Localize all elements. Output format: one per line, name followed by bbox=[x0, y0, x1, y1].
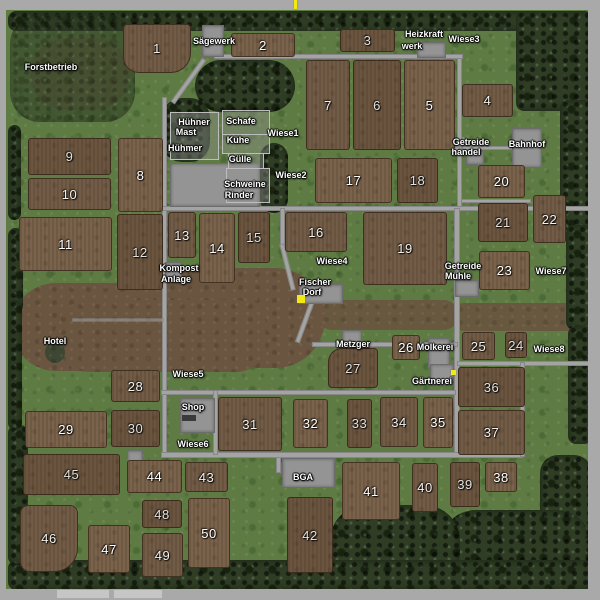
field-17-label: 17 bbox=[346, 173, 361, 188]
field-14-label: 14 bbox=[209, 241, 224, 256]
place-label-s-gewerk-2: Sägewerk bbox=[193, 36, 235, 46]
field-40: 40 bbox=[412, 463, 438, 512]
forest-patch-14 bbox=[195, 60, 295, 112]
place-label-h-hmer-8: Hühmer bbox=[168, 143, 202, 153]
field-36: 36 bbox=[458, 367, 525, 407]
field-44: 44 bbox=[127, 460, 182, 493]
field-3: 3 bbox=[340, 29, 395, 52]
place-label-kompost-22: Kompost bbox=[160, 263, 199, 273]
field-10: 10 bbox=[28, 178, 111, 210]
place-label-wiese4-24: Wiese4 bbox=[317, 256, 348, 266]
place-label-shop-33: Shop bbox=[182, 402, 205, 412]
field-7-label: 7 bbox=[324, 98, 332, 113]
road-segment-16 bbox=[276, 457, 281, 473]
field-41-label: 41 bbox=[363, 484, 378, 499]
place-label-forstbetrieb-1: Forstbetrieb bbox=[25, 62, 78, 72]
place-label-heizkraft-3: Heizkraft bbox=[405, 29, 443, 39]
field-34: 34 bbox=[380, 397, 418, 447]
place-label-dorf-26: Dorf bbox=[303, 287, 322, 297]
field-45: 45 bbox=[23, 454, 120, 495]
player-position-marker bbox=[297, 295, 305, 303]
place-label-wiese5-28: Wiese5 bbox=[173, 369, 204, 379]
field-35-label: 35 bbox=[430, 415, 445, 430]
place-label-g-lle-11: Gülle bbox=[229, 154, 252, 164]
field-5-label: 5 bbox=[426, 98, 434, 113]
place-label-wiese2-15: Wiese2 bbox=[276, 170, 307, 180]
field-23: 23 bbox=[479, 251, 530, 290]
frame-right bbox=[588, 0, 600, 600]
field-44-label: 44 bbox=[147, 469, 162, 484]
grain-mill bbox=[455, 280, 479, 297]
field-22: 22 bbox=[533, 195, 566, 243]
place-label-wiese8-32: Wiese8 bbox=[534, 344, 565, 354]
garden-center-marker bbox=[451, 370, 456, 375]
field-13-label: 13 bbox=[174, 228, 189, 243]
field-13: 13 bbox=[168, 212, 196, 258]
field-25: 25 bbox=[462, 332, 495, 360]
field-35: 35 bbox=[423, 397, 453, 448]
place-label-anlage-23: Anlage bbox=[161, 274, 191, 284]
field-30: 30 bbox=[111, 410, 160, 447]
field-12: 12 bbox=[117, 214, 163, 290]
road-segment-4 bbox=[457, 58, 462, 208]
field-28-label: 28 bbox=[128, 379, 143, 394]
field-34-label: 34 bbox=[391, 415, 406, 430]
place-label-getreide-16: Getreide bbox=[453, 137, 490, 147]
field-39-label: 39 bbox=[457, 477, 472, 492]
field-50-label: 50 bbox=[201, 526, 216, 541]
place-label-bga-35: BGA bbox=[293, 472, 313, 482]
field-24-label: 24 bbox=[508, 338, 523, 353]
shop-vehicle bbox=[182, 415, 196, 421]
field-19: 19 bbox=[363, 212, 447, 285]
place-label-metzger-29: Metzger bbox=[336, 339, 370, 349]
field-46-label: 46 bbox=[41, 531, 56, 546]
field-40-label: 40 bbox=[417, 480, 432, 495]
field-49: 49 bbox=[142, 533, 183, 577]
field-15-label: 15 bbox=[246, 230, 261, 245]
field-49-label: 49 bbox=[155, 548, 170, 563]
field-46: 46 bbox=[20, 505, 78, 572]
road-segment-7 bbox=[457, 361, 600, 366]
field-20: 20 bbox=[478, 165, 525, 198]
field-7: 7 bbox=[306, 60, 350, 150]
field-8-label: 8 bbox=[137, 168, 145, 183]
place-label-wiese7-21: Wiese7 bbox=[536, 266, 567, 276]
place-label-wiese6-34: Wiese6 bbox=[178, 439, 209, 449]
place-label-mast-7: Mast bbox=[176, 127, 197, 137]
field-42-label: 42 bbox=[302, 528, 317, 543]
forest-patch-11 bbox=[8, 125, 21, 220]
field-31: 31 bbox=[218, 397, 282, 451]
field-47: 47 bbox=[88, 525, 130, 573]
field-6: 6 bbox=[353, 60, 401, 150]
place-label-h-hner-6: Hühner bbox=[178, 117, 210, 127]
field-12-label: 12 bbox=[132, 245, 147, 260]
place-label-g-rtnerei-31: Gärtnerei bbox=[412, 376, 452, 386]
place-label-rinder-13: Rinder bbox=[225, 190, 254, 200]
place-label-m-hle-20: Mühle bbox=[445, 271, 471, 281]
field-28: 28 bbox=[111, 370, 160, 402]
field-48-label: 48 bbox=[154, 507, 169, 522]
field-37: 37 bbox=[458, 410, 525, 455]
frame-accent-2 bbox=[114, 590, 162, 598]
place-label-wiese3-5: Wiese3 bbox=[449, 34, 480, 44]
dirt-patch-4 bbox=[318, 300, 458, 330]
field-16: 16 bbox=[285, 212, 347, 252]
place-label-hotel-27: Hotel bbox=[44, 336, 67, 346]
forest-patch-2 bbox=[516, 11, 592, 111]
frame-top bbox=[0, 0, 600, 10]
field-2-label: 2 bbox=[259, 38, 267, 53]
place-label-werk-4: werk bbox=[402, 41, 423, 51]
field-2: 2 bbox=[231, 33, 295, 57]
field-29: 29 bbox=[25, 411, 107, 448]
field-6-label: 6 bbox=[373, 98, 381, 113]
field-21-label: 21 bbox=[495, 215, 510, 230]
field-43-label: 43 bbox=[199, 470, 214, 485]
field-23-label: 23 bbox=[497, 263, 512, 278]
field-1: 1 bbox=[123, 24, 191, 73]
field-15: 15 bbox=[238, 212, 270, 263]
road-segment-21 bbox=[72, 318, 164, 322]
field-25-label: 25 bbox=[471, 339, 486, 354]
field-3-label: 3 bbox=[364, 33, 372, 48]
field-32: 32 bbox=[293, 399, 328, 448]
forest-patch-13 bbox=[8, 300, 22, 430]
field-50: 50 bbox=[188, 498, 230, 568]
field-21: 21 bbox=[478, 203, 528, 242]
field-43: 43 bbox=[185, 462, 228, 492]
field-41: 41 bbox=[342, 462, 400, 520]
field-5: 5 bbox=[404, 60, 455, 150]
field-19-label: 19 bbox=[397, 241, 412, 256]
field-11-label: 11 bbox=[58, 237, 73, 252]
field-24: 24 bbox=[505, 332, 527, 358]
field-18-label: 18 bbox=[410, 173, 425, 188]
field-1-label: 1 bbox=[153, 41, 161, 56]
place-label-handel-17: handel bbox=[451, 147, 480, 157]
field-30-label: 30 bbox=[128, 421, 143, 436]
field-4-label: 4 bbox=[484, 93, 492, 108]
field-27: 27 bbox=[328, 348, 378, 388]
farm-map: 1234567891011121314151617181920212223242… bbox=[0, 0, 600, 600]
place-label-getreide-19: Getreide bbox=[445, 261, 482, 271]
field-48: 48 bbox=[142, 500, 182, 528]
field-16-label: 16 bbox=[308, 225, 323, 240]
field-14: 14 bbox=[199, 213, 235, 283]
frame-left bbox=[0, 0, 6, 600]
frame-accent-1 bbox=[57, 590, 109, 598]
place-label-schafe-9: Schafe bbox=[226, 116, 256, 126]
field-9-label: 9 bbox=[66, 149, 74, 164]
place-label-k-he-10: Kühe bbox=[227, 135, 250, 145]
field-38-label: 38 bbox=[493, 470, 508, 485]
field-32-label: 32 bbox=[303, 416, 318, 431]
field-10-label: 10 bbox=[62, 187, 77, 202]
place-label-wiese1-14: Wiese1 bbox=[268, 128, 299, 138]
road-segment-13 bbox=[161, 390, 456, 395]
field-17: 17 bbox=[315, 158, 392, 203]
field-20-label: 20 bbox=[494, 174, 509, 189]
field-26-label: 26 bbox=[398, 340, 413, 355]
field-22-label: 22 bbox=[542, 212, 557, 227]
field-37-label: 37 bbox=[484, 425, 499, 440]
field-27-label: 27 bbox=[345, 361, 360, 376]
place-label-schweine-12: Schweine bbox=[224, 179, 266, 189]
place-label-molkerei-30: Molkerei bbox=[417, 342, 454, 352]
field-31-label: 31 bbox=[242, 417, 257, 432]
field-33: 33 bbox=[347, 399, 372, 448]
place-label-bahnhof-18: Bahnhof bbox=[509, 139, 546, 149]
field-29-label: 29 bbox=[58, 422, 73, 437]
field-45-label: 45 bbox=[64, 467, 79, 482]
field-11: 11 bbox=[19, 217, 112, 271]
field-33-label: 33 bbox=[352, 416, 367, 431]
field-47-label: 47 bbox=[101, 542, 116, 557]
field-39: 39 bbox=[450, 462, 480, 507]
field-9: 9 bbox=[28, 138, 111, 175]
place-label-fischer-25: Fischer bbox=[299, 277, 331, 287]
field-38: 38 bbox=[485, 462, 517, 492]
field-18: 18 bbox=[397, 158, 438, 203]
north-tick bbox=[294, 0, 297, 9]
field-4: 4 bbox=[462, 84, 513, 117]
field-36-label: 36 bbox=[484, 380, 499, 395]
field-42: 42 bbox=[287, 497, 333, 573]
field-8: 8 bbox=[118, 138, 163, 212]
